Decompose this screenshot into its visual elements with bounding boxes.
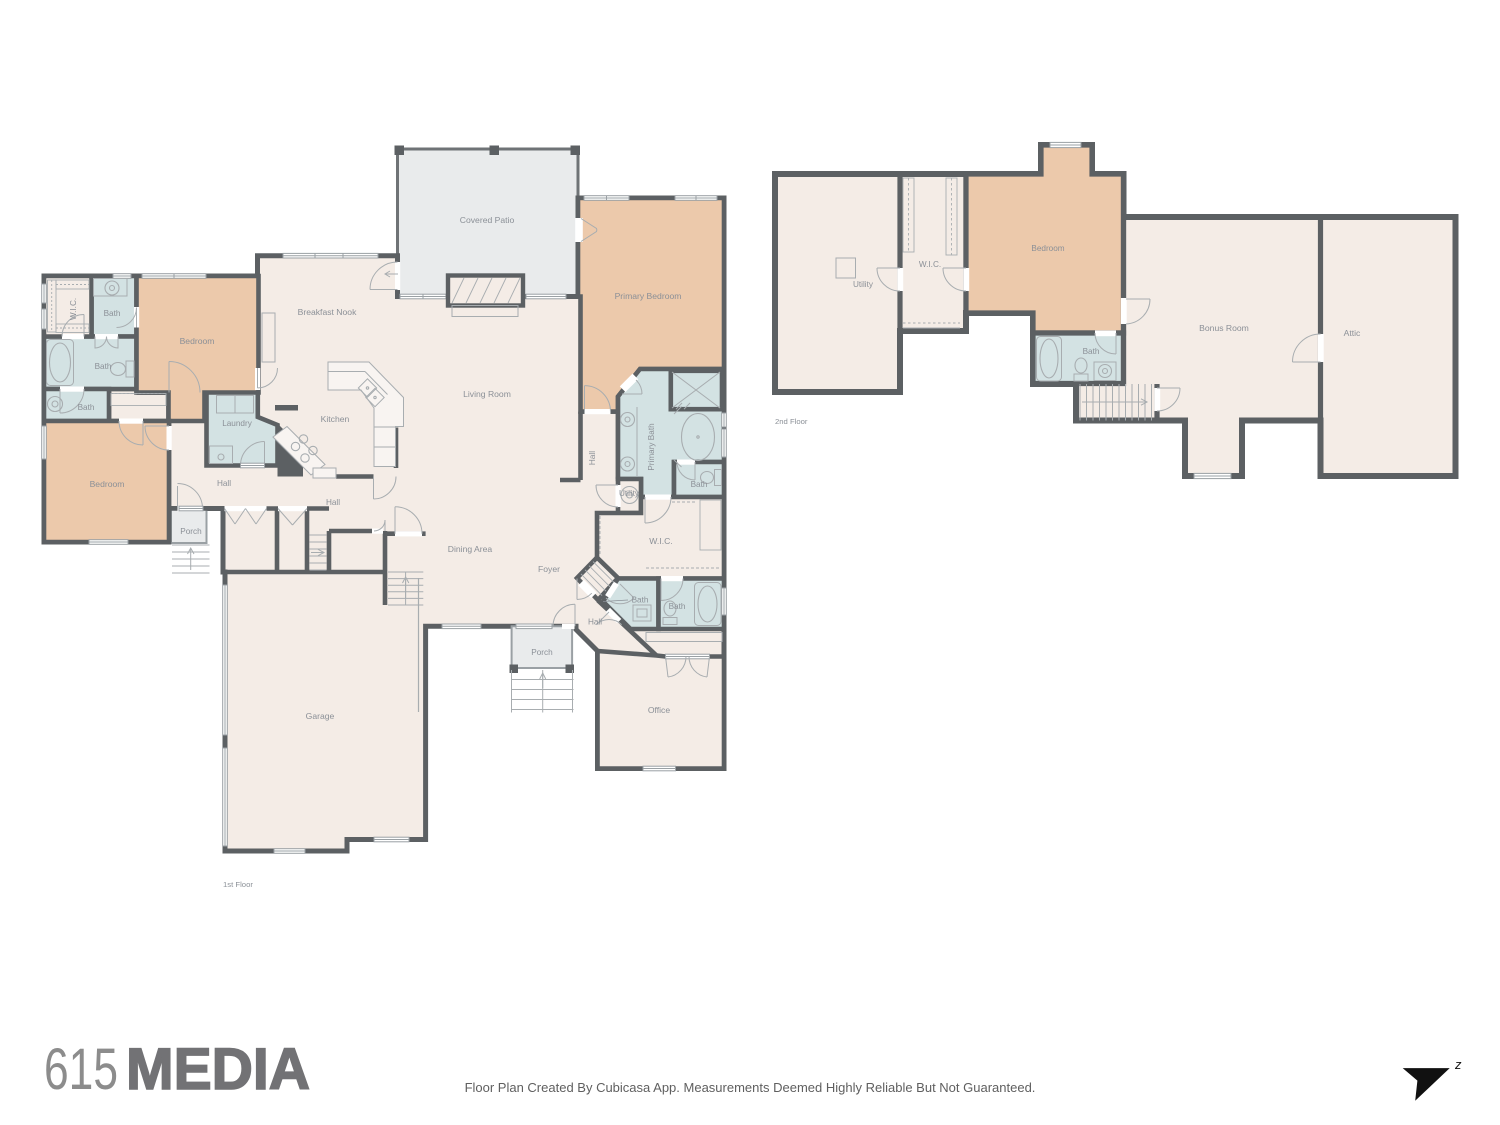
svg-text:Breakfast Nook: Breakfast Nook [298, 307, 357, 317]
svg-text:Hall: Hall [217, 479, 231, 488]
svg-text:Bath: Bath [691, 480, 708, 489]
svg-text:Utility: Utility [853, 280, 874, 289]
svg-text:Attic: Attic [1344, 328, 1361, 338]
svg-text:Porch: Porch [180, 527, 202, 536]
svg-text:Hall: Hall [326, 498, 340, 507]
svg-text:Garage: Garage [306, 711, 335, 721]
svg-text:W.I.C.: W.I.C. [649, 536, 672, 546]
svg-text:Hall: Hall [588, 618, 602, 627]
svg-text:Utility: Utility [619, 489, 640, 498]
svg-text:Bath: Bath [1083, 347, 1100, 356]
svg-text:Bedroom: Bedroom [90, 479, 125, 489]
svg-text:Bath: Bath [632, 596, 649, 605]
svg-text:Bonus Room: Bonus Room [1199, 323, 1249, 333]
svg-text:Bath: Bath [104, 309, 121, 318]
svg-text:Laundry: Laundry [222, 419, 252, 428]
svg-text:Bedroom: Bedroom [180, 336, 215, 346]
svg-text:Bath: Bath [669, 602, 686, 611]
svg-text:Primary Bedroom: Primary Bedroom [615, 291, 682, 301]
svg-text:Bath: Bath [78, 403, 95, 412]
svg-text:Bedroom: Bedroom [1031, 244, 1064, 253]
svg-text:Primary Bath: Primary Bath [647, 423, 656, 471]
svg-text:Covered Patio: Covered Patio [460, 215, 515, 225]
svg-text:W.I.C.: W.I.C. [69, 298, 78, 320]
svg-text:Office: Office [648, 705, 671, 715]
svg-text:MEDIA: MEDIA [126, 1037, 310, 1102]
svg-text:615: 615 [44, 1037, 118, 1102]
svg-text:Living Room: Living Room [463, 389, 511, 399]
svg-text:2nd Floor: 2nd Floor [775, 417, 808, 426]
svg-text:z: z [1454, 1057, 1462, 1072]
svg-text:Floor Plan Created By Cubicasa: Floor Plan Created By Cubicasa App. Meas… [465, 1080, 1036, 1095]
svg-text:W.I.C.: W.I.C. [919, 260, 941, 269]
svg-text:Dining Area: Dining Area [448, 544, 493, 554]
svg-text:Porch: Porch [531, 648, 553, 657]
svg-text:Hall: Hall [588, 451, 597, 465]
svg-text:1st Floor: 1st Floor [223, 880, 253, 889]
svg-text:Bath: Bath [95, 362, 112, 371]
svg-text:Kitchen: Kitchen [321, 414, 350, 424]
svg-text:Foyer: Foyer [538, 564, 560, 574]
